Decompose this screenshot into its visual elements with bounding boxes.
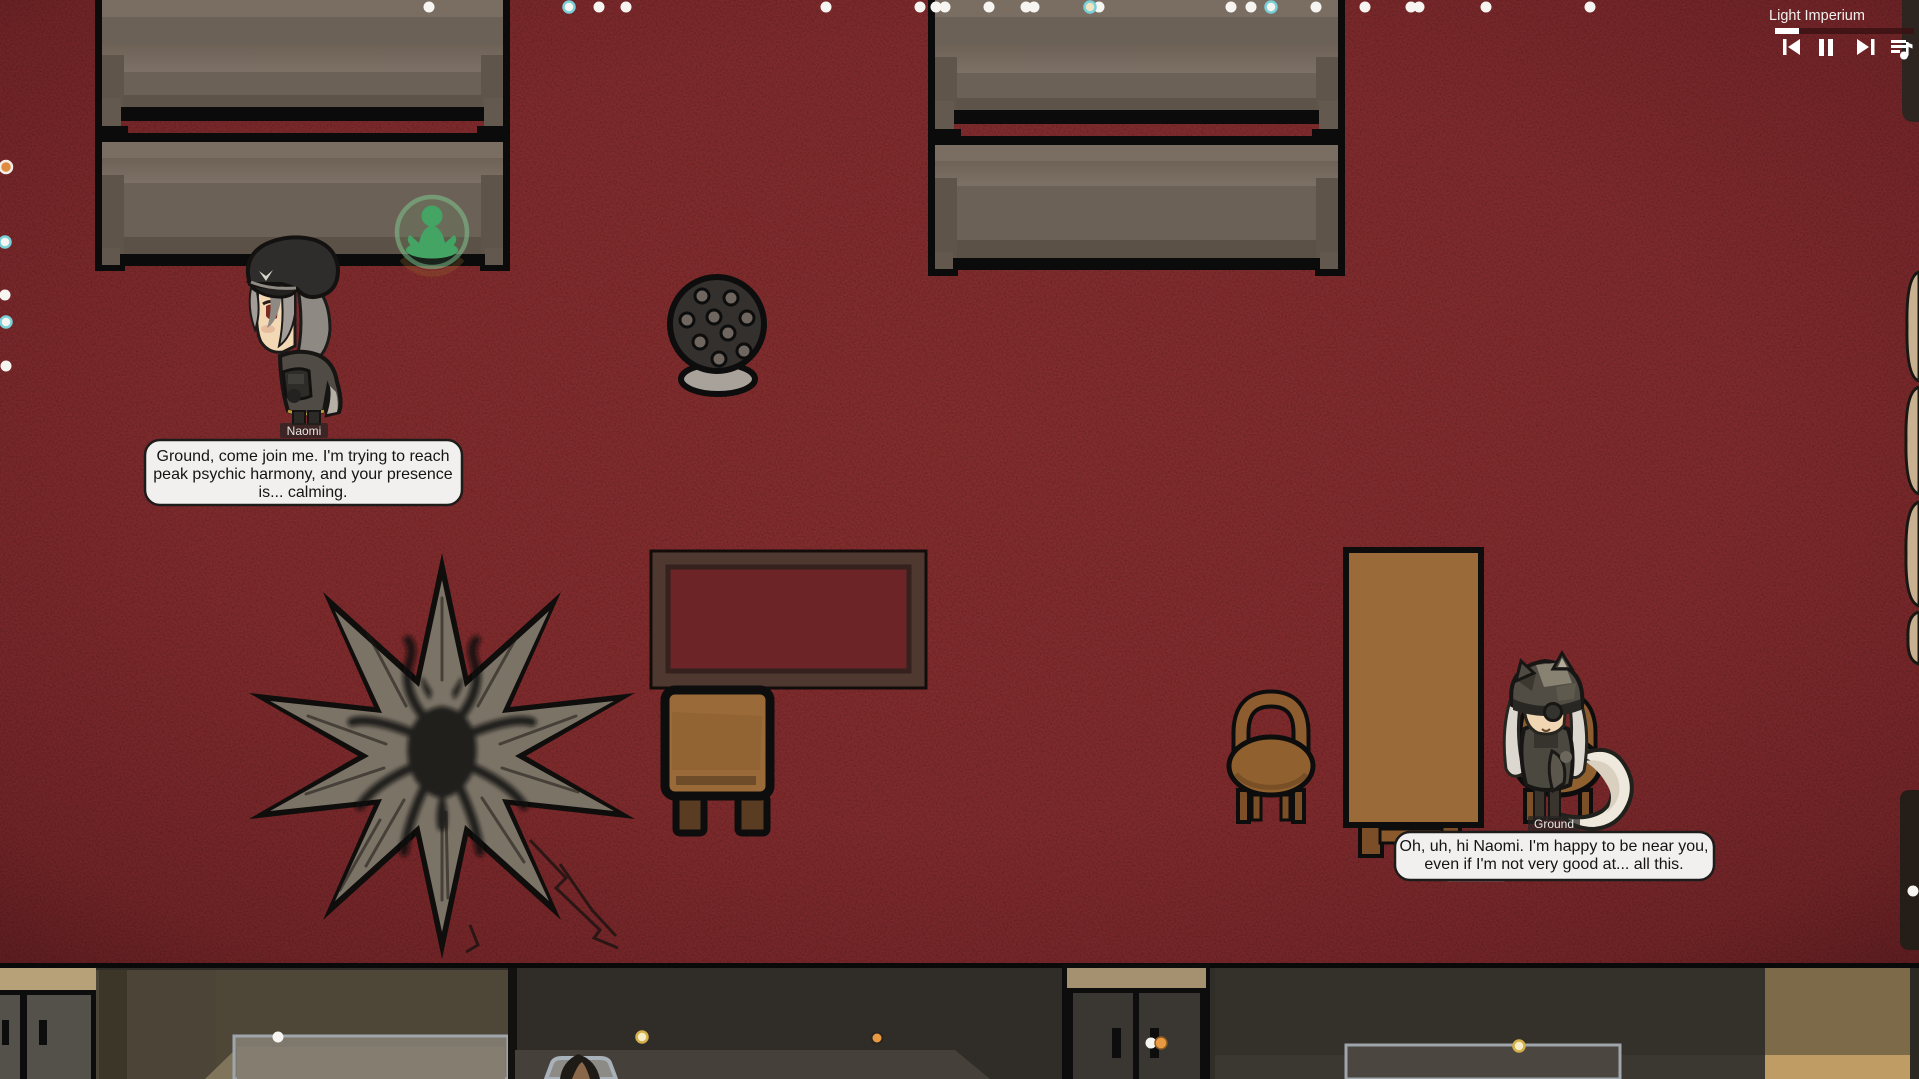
svg-text:even if I'm not very good at..: even if I'm not very good at... all this… bbox=[1424, 856, 1683, 873]
svg-text:Ground, come join me. I'm tryi: Ground, come join me. I'm trying to reac… bbox=[157, 448, 450, 465]
svg-text:peak psychic harmony, and your: peak psychic harmony, and your presence bbox=[153, 466, 453, 483]
svg-text:Oh, uh, hi Naomi. I'm happy to: Oh, uh, hi Naomi. I'm happy to be near y… bbox=[1400, 838, 1709, 855]
svg-text:is... calming.: is... calming. bbox=[259, 484, 348, 501]
svg-text:Ground: Ground bbox=[1534, 817, 1574, 831]
svg-text:Naomi: Naomi bbox=[287, 424, 322, 438]
svg-text:Light Imperium: Light Imperium bbox=[1769, 8, 1865, 24]
